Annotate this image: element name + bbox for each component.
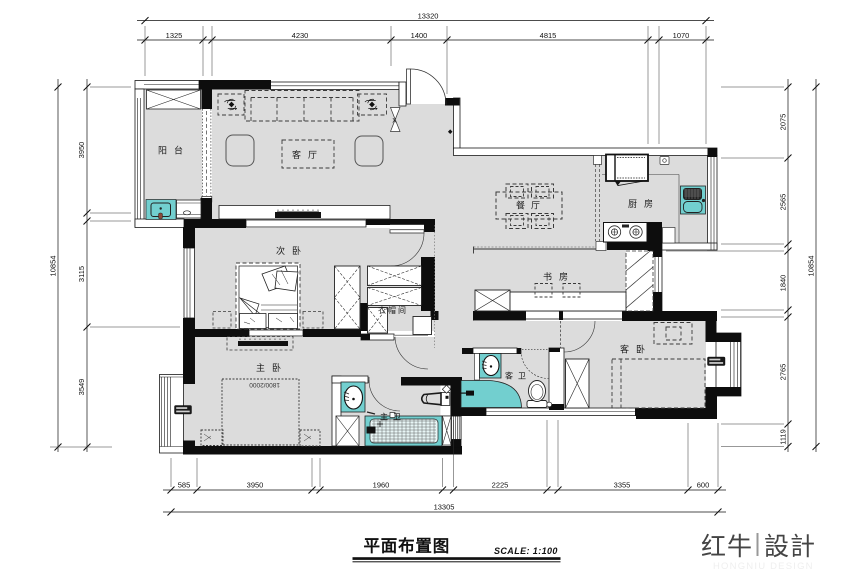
svg-text:X: X: [392, 117, 397, 124]
svg-text:585: 585: [178, 481, 191, 490]
svg-text:600: 600: [697, 481, 710, 490]
svg-text:2075: 2075: [779, 114, 788, 131]
svg-text:餐厅: 餐厅: [516, 200, 546, 211]
svg-text:主卫: 主卫: [380, 412, 406, 422]
svg-text:3355: 3355: [614, 481, 631, 490]
svg-text:1840: 1840: [779, 275, 788, 292]
svg-text:红牛: 红牛: [701, 533, 753, 561]
svg-text:次卧: 次卧: [276, 245, 308, 256]
svg-text:SCALE: 1:100: SCALE: 1:100: [494, 546, 558, 556]
svg-text:13305: 13305: [434, 503, 455, 512]
svg-text:3549: 3549: [77, 379, 86, 396]
svg-text:1800/2000: 1800/2000: [249, 381, 280, 388]
svg-text:3950: 3950: [77, 142, 86, 159]
svg-text:3115: 3115: [77, 266, 86, 282]
svg-text:衣帽间: 衣帽间: [378, 305, 408, 315]
svg-text:3950: 3950: [247, 481, 264, 490]
svg-text:客卧: 客卧: [620, 344, 652, 355]
svg-text:2765: 2765: [779, 364, 788, 381]
svg-text:10854: 10854: [49, 256, 58, 277]
svg-text:客厅: 客厅: [292, 149, 324, 160]
svg-text:2565: 2565: [779, 194, 788, 211]
svg-text:厨房: 厨房: [628, 198, 660, 209]
svg-text:主卧: 主卧: [256, 362, 288, 373]
svg-text:1070: 1070: [673, 31, 690, 40]
svg-text:书房: 书房: [543, 271, 575, 282]
svg-text:1119: 1119: [779, 429, 788, 445]
svg-text:4815: 4815: [540, 31, 557, 40]
svg-text:平面布置图: 平面布置图: [364, 536, 451, 556]
svg-text:客卫: 客卫: [505, 371, 531, 381]
svg-text:1960: 1960: [373, 481, 390, 490]
svg-text:2225: 2225: [492, 481, 509, 490]
svg-text:4230: 4230: [292, 31, 309, 40]
svg-text:10854: 10854: [807, 256, 816, 277]
svg-text:1325: 1325: [166, 31, 183, 40]
svg-text:HONGNIU DESIGN: HONGNIU DESIGN: [713, 561, 814, 572]
svg-text:設計: 設計: [764, 533, 816, 561]
svg-text:1400: 1400: [411, 31, 428, 40]
svg-text:13320: 13320: [418, 12, 439, 21]
svg-text:阳台: 阳台: [158, 145, 190, 156]
